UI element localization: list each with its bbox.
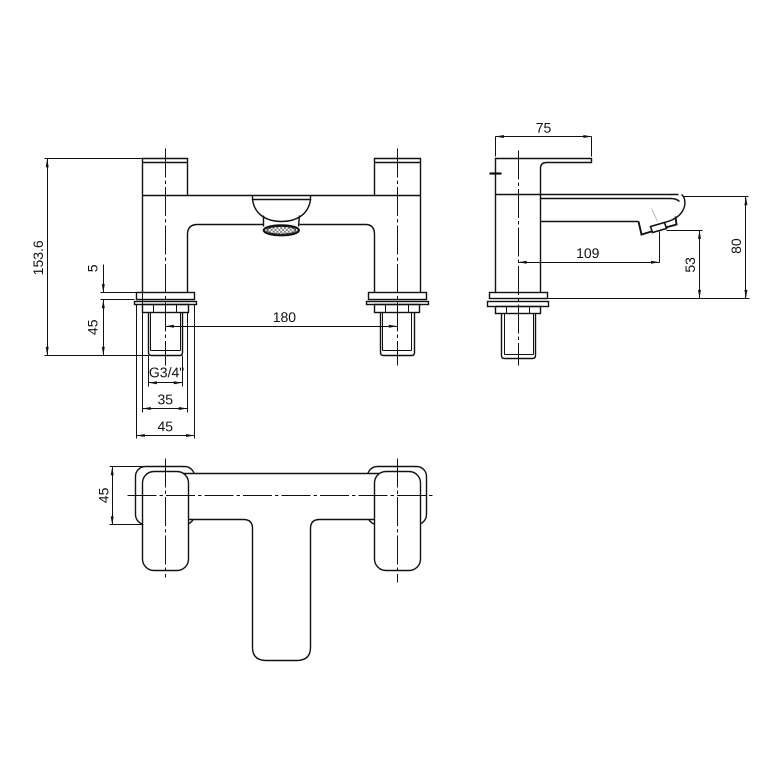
svg-text:109: 109: [576, 245, 600, 261]
svg-text:153.6: 153.6: [30, 240, 46, 275]
svg-text:5: 5: [85, 264, 101, 272]
svg-text:75: 75: [536, 120, 552, 136]
svg-text:G3/4": G3/4": [149, 364, 184, 380]
svg-text:53: 53: [682, 257, 698, 273]
svg-text:45: 45: [85, 319, 101, 335]
svg-text:180: 180: [273, 309, 297, 325]
svg-text:45: 45: [158, 418, 174, 434]
svg-text:45: 45: [95, 487, 111, 503]
svg-text:35: 35: [158, 391, 174, 407]
svg-text:80: 80: [728, 238, 744, 254]
